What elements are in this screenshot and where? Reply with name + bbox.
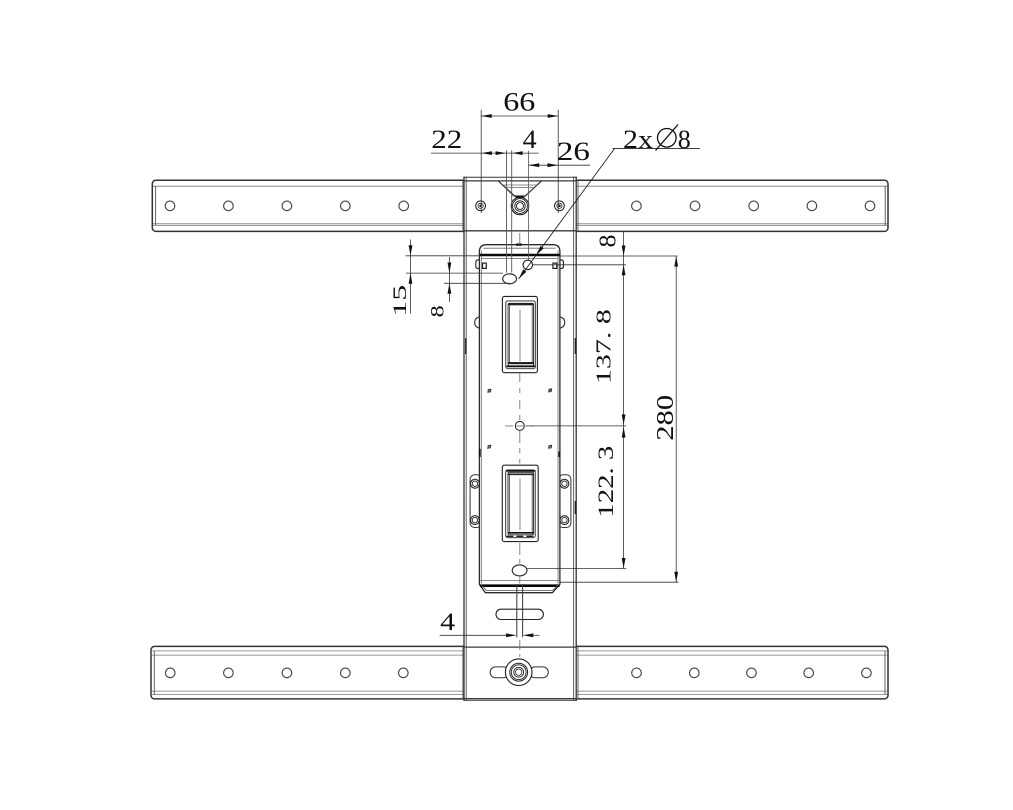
svg-text:137. 8: 137. 8 [592,309,616,384]
svg-text:2x: 2x [623,125,653,154]
svg-text:26: 26 [557,137,590,166]
svg-text:4: 4 [523,125,537,154]
svg-text:8: 8 [596,235,622,248]
svg-text:4: 4 [440,609,456,636]
svg-text:8: 8 [678,125,691,154]
svg-text:66: 66 [503,88,535,117]
svg-text:122. 3: 122. 3 [593,446,618,518]
svg-text:8: 8 [427,305,448,317]
svg-text:15: 15 [390,285,411,317]
svg-text:280: 280 [653,395,679,441]
svg-text:22: 22 [431,125,462,154]
